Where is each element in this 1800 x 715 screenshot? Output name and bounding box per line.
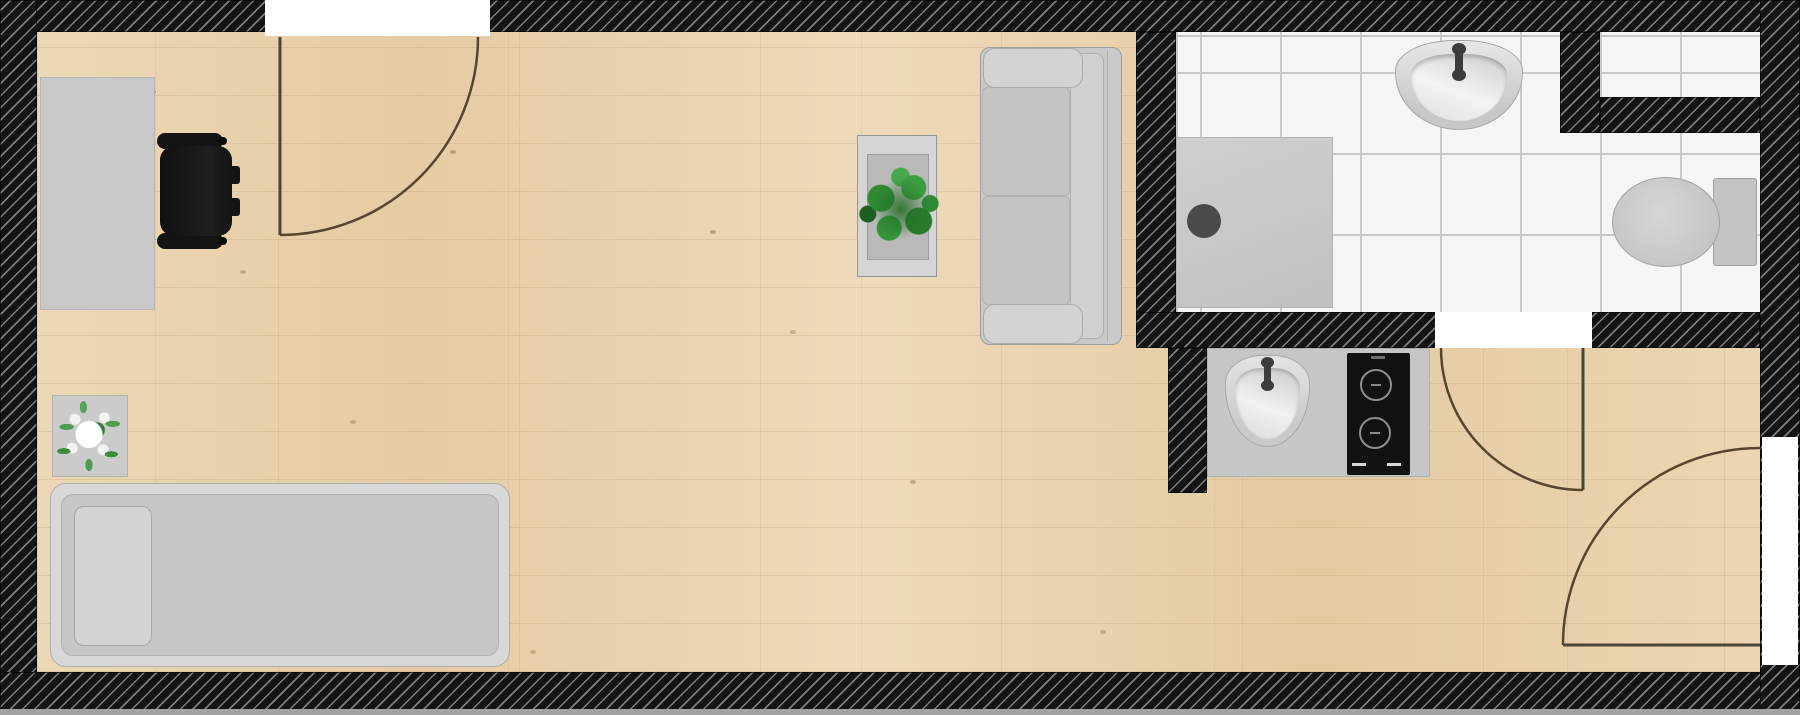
sofa-cushion-2 bbox=[982, 196, 1070, 305]
sofa-back-edge bbox=[1107, 51, 1108, 341]
cooktop-controls-left bbox=[1352, 463, 1366, 466]
bed[interactable] bbox=[50, 483, 510, 667]
wall-kitchen-stub bbox=[1168, 348, 1207, 493]
burner-dash-2 bbox=[1370, 432, 1380, 434]
sofa-armrest-top bbox=[983, 48, 1083, 88]
sofa-backrest bbox=[1070, 53, 1104, 339]
wheel-hub-top bbox=[219, 137, 227, 145]
wall-bathroom-pillar bbox=[1560, 32, 1600, 133]
faucet-knob-base bbox=[1452, 69, 1466, 81]
top-door-opening[interactable] bbox=[265, 0, 490, 36]
bathroom-door-opening[interactable] bbox=[1435, 312, 1592, 348]
wall-bathroom-left bbox=[1136, 32, 1176, 348]
bottom-edge-strip bbox=[0, 709, 1800, 715]
floorplan-canvas bbox=[0, 0, 1800, 715]
wheelchair[interactable] bbox=[155, 131, 243, 251]
sofa-cushion-1 bbox=[982, 87, 1070, 196]
induction-cooktop[interactable] bbox=[1347, 353, 1410, 475]
bathroom-sink[interactable] bbox=[1395, 40, 1523, 130]
footrest-bottom bbox=[228, 198, 240, 216]
flower-plant-icon bbox=[54, 398, 124, 474]
cooktop-controls-right bbox=[1387, 463, 1401, 466]
faucet-knob-top bbox=[1452, 43, 1466, 55]
wheel-hub-bottom bbox=[219, 237, 227, 245]
wheelchair-seat bbox=[160, 146, 232, 236]
entry-door-opening[interactable] bbox=[1762, 437, 1798, 665]
wall-left bbox=[0, 0, 37, 715]
shower-tray[interactable] bbox=[1176, 137, 1333, 308]
shower-drain-icon bbox=[1187, 204, 1221, 238]
sofa[interactable] bbox=[980, 47, 1122, 345]
toilet[interactable] bbox=[1612, 177, 1758, 267]
kitchen-sink[interactable] bbox=[1225, 355, 1310, 447]
cooktop-logo-mark bbox=[1371, 356, 1385, 359]
kitchen-faucet-knob bbox=[1261, 357, 1274, 368]
plant-icon bbox=[858, 163, 940, 251]
toilet-bowl bbox=[1612, 177, 1720, 267]
kitchen-faucet-base bbox=[1261, 380, 1274, 391]
pillow bbox=[74, 506, 152, 646]
sofa-armrest-bottom bbox=[983, 304, 1083, 344]
footrest-top bbox=[228, 166, 240, 184]
burner-dash-1 bbox=[1371, 384, 1381, 386]
wall-toilet-nook-top bbox=[1600, 97, 1760, 133]
desk[interactable] bbox=[40, 77, 155, 310]
